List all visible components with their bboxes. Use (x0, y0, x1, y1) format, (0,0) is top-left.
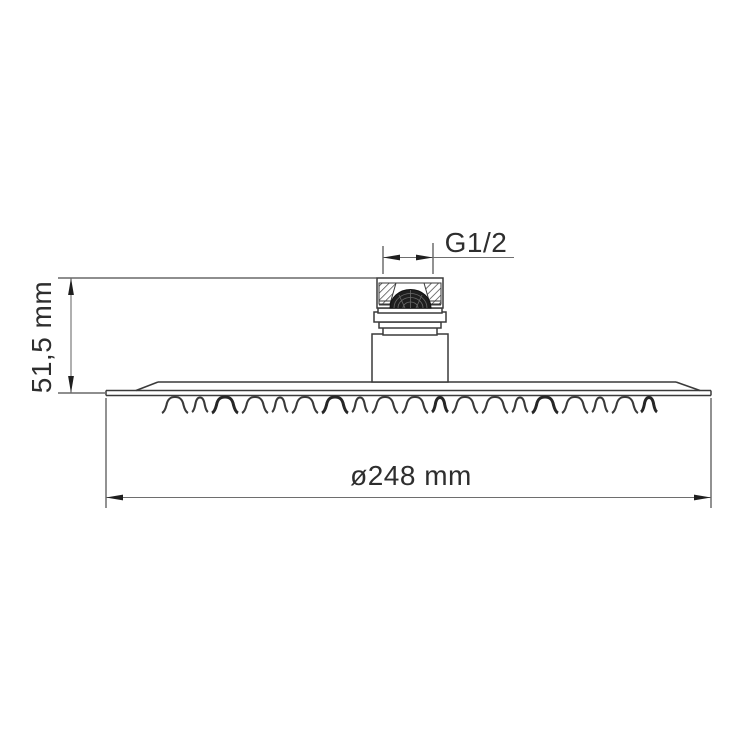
technical-drawing-canvas: G1/2 51,5 mm ø248 mm (0, 0, 752, 751)
arrow-up (68, 278, 74, 295)
shower-head-drawing (0, 0, 752, 751)
diameter-dimension-label: ø248 mm (350, 460, 472, 492)
head-plate (106, 382, 711, 396)
threaded-nut (377, 278, 443, 308)
arrow-left (106, 495, 123, 501)
arrow-right (416, 255, 433, 261)
thread-dimension-label: G1/2 (445, 227, 508, 259)
connector-stem (372, 308, 448, 382)
dimension-height (58, 278, 377, 393)
spray-nozzles (162, 397, 657, 413)
arrow-down (68, 376, 74, 393)
height-dimension-label: 51,5 mm (26, 281, 58, 393)
arrow-left (383, 255, 400, 261)
arrow-right (694, 495, 711, 501)
